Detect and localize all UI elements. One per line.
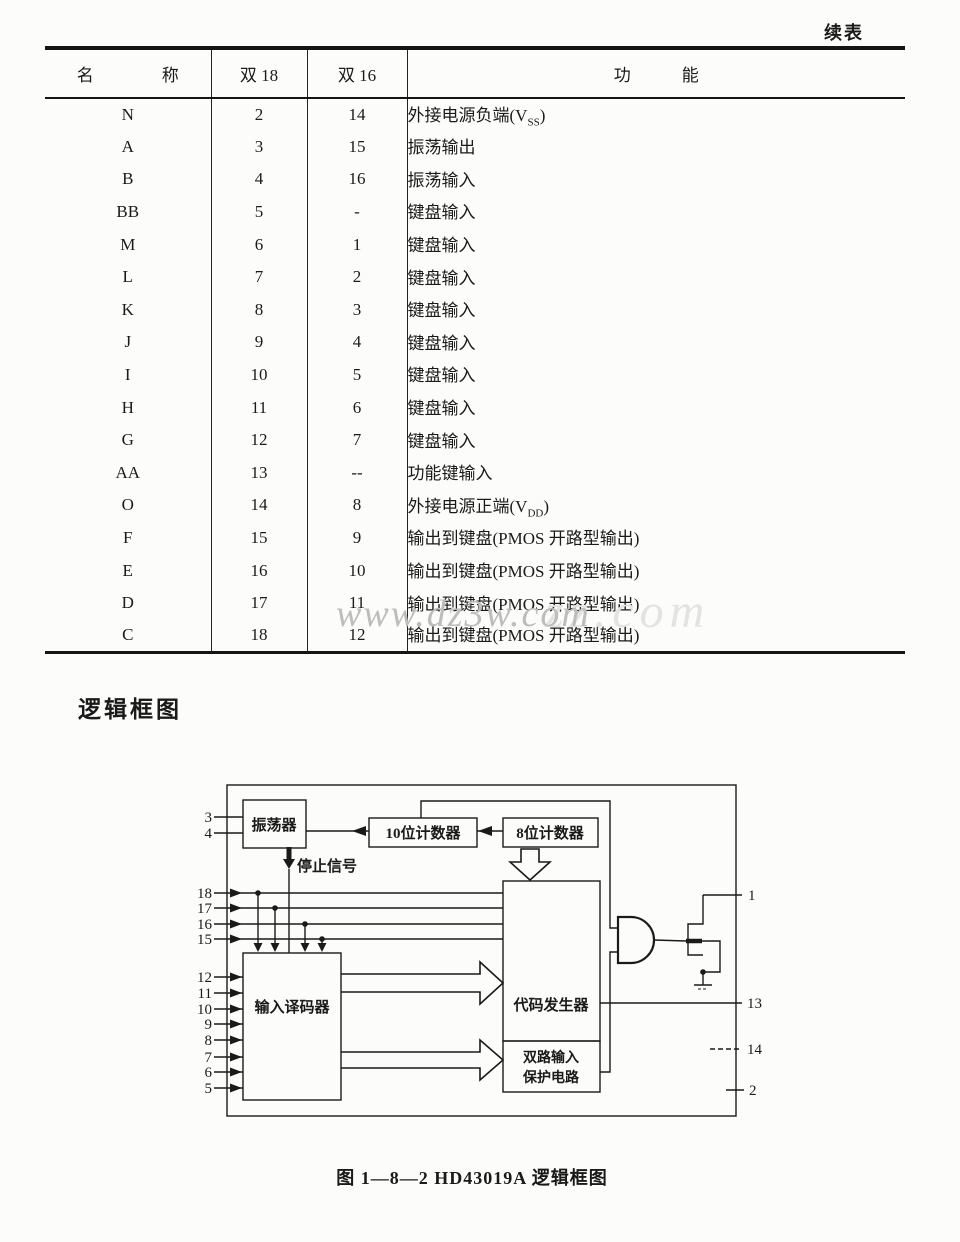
code-generator-box: [503, 881, 600, 1041]
protection-to-and-wire: [600, 952, 618, 1072]
pin-label: 14: [747, 1042, 763, 1058]
pin-label: 6: [205, 1065, 213, 1081]
down-arrowhead-icon: [254, 943, 263, 952]
right-arrowhead-icon: [230, 935, 242, 944]
figure-caption: 图 1—8—2 HD43019A 逻辑框图: [0, 1164, 944, 1190]
pin-label: 13: [747, 996, 762, 1012]
junction-dot: [700, 969, 706, 975]
logic-block-diagram: 振荡器 10位计数器 8位计数器 代码发生器 双路输入 保护电路 输入译码器 停…: [0, 0, 960, 1242]
pin-label: 18: [197, 886, 212, 902]
down-arrowhead-icon: [301, 943, 310, 952]
scanned-datasheet-page: 续表 名 称 双 18 双 16 功 能 N 2 14 外接电源负端(VSS) …: [0, 0, 960, 1242]
counter10-label: 10位计数器: [385, 824, 461, 842]
right-arrowhead-icon: [230, 1084, 242, 1093]
pin-label: 11: [198, 986, 212, 1002]
pmos-transistor-icon: [688, 895, 703, 955]
counter8-label: 8位计数器: [516, 824, 585, 842]
right-arrowhead-icon: [230, 1036, 242, 1045]
input-decoder-label: 输入译码器: [254, 998, 330, 1016]
down-arrow-icon: [510, 849, 550, 880]
left-arrowhead-icon: [352, 826, 366, 836]
pin-label: 9: [205, 1017, 213, 1033]
pin-label: 16: [197, 917, 213, 933]
right-arrowhead-icon: [230, 1020, 242, 1029]
stop-signal-label: 停止信号: [297, 857, 357, 875]
code-generator-label: 代码发生器: [512, 996, 589, 1014]
protection-label-line1: 双路输入: [523, 1049, 579, 1066]
down-arrowhead-icon: [318, 943, 327, 952]
bus-arrow-icon: [341, 1040, 503, 1080]
right-arrowhead-icon: [230, 1068, 242, 1077]
pin-label: 4: [205, 826, 213, 842]
protection-label-line2: 保护电路: [522, 1069, 580, 1086]
right-arrowhead-icon: [230, 920, 242, 929]
pin-label: 7: [205, 1050, 213, 1066]
junction-dot: [302, 921, 308, 927]
right-arrowhead-icon: [230, 1053, 242, 1062]
right-arrowhead-icon: [230, 904, 242, 913]
down-arrowhead-icon: [271, 943, 280, 952]
and-gate-icon: [618, 917, 654, 963]
junction-dot: [272, 905, 278, 911]
feedback-wire: [421, 801, 618, 928]
pin-label: 12: [197, 970, 212, 986]
pin-label: 17: [197, 901, 213, 917]
bus-arrow-icon: [341, 962, 503, 1004]
input-decoder-box: [243, 953, 341, 1100]
right-arrowhead-icon: [230, 973, 242, 982]
right-arrowhead-icon: [230, 1005, 242, 1014]
pin-label: 15: [197, 932, 212, 948]
and-output-wire: [654, 940, 686, 941]
pin-label: 5: [205, 1081, 213, 1097]
pmos-source-wire: [702, 941, 720, 985]
right-arrowhead-icon: [230, 989, 242, 998]
pin-label: 10: [197, 1002, 212, 1018]
oscillator-label: 振荡器: [251, 816, 297, 834]
left-arrowhead-icon: [478, 826, 492, 836]
pin-label: 3: [205, 810, 213, 826]
junction-dot: [319, 936, 325, 942]
pin-label: 1: [748, 888, 756, 904]
down-arrowhead-icon: [283, 859, 295, 869]
chip-outline: [227, 785, 736, 1116]
pin-label: 8: [205, 1033, 213, 1049]
pin-label: 2: [749, 1083, 757, 1099]
junction-dot: [255, 890, 261, 896]
right-arrowhead-icon: [230, 889, 242, 898]
